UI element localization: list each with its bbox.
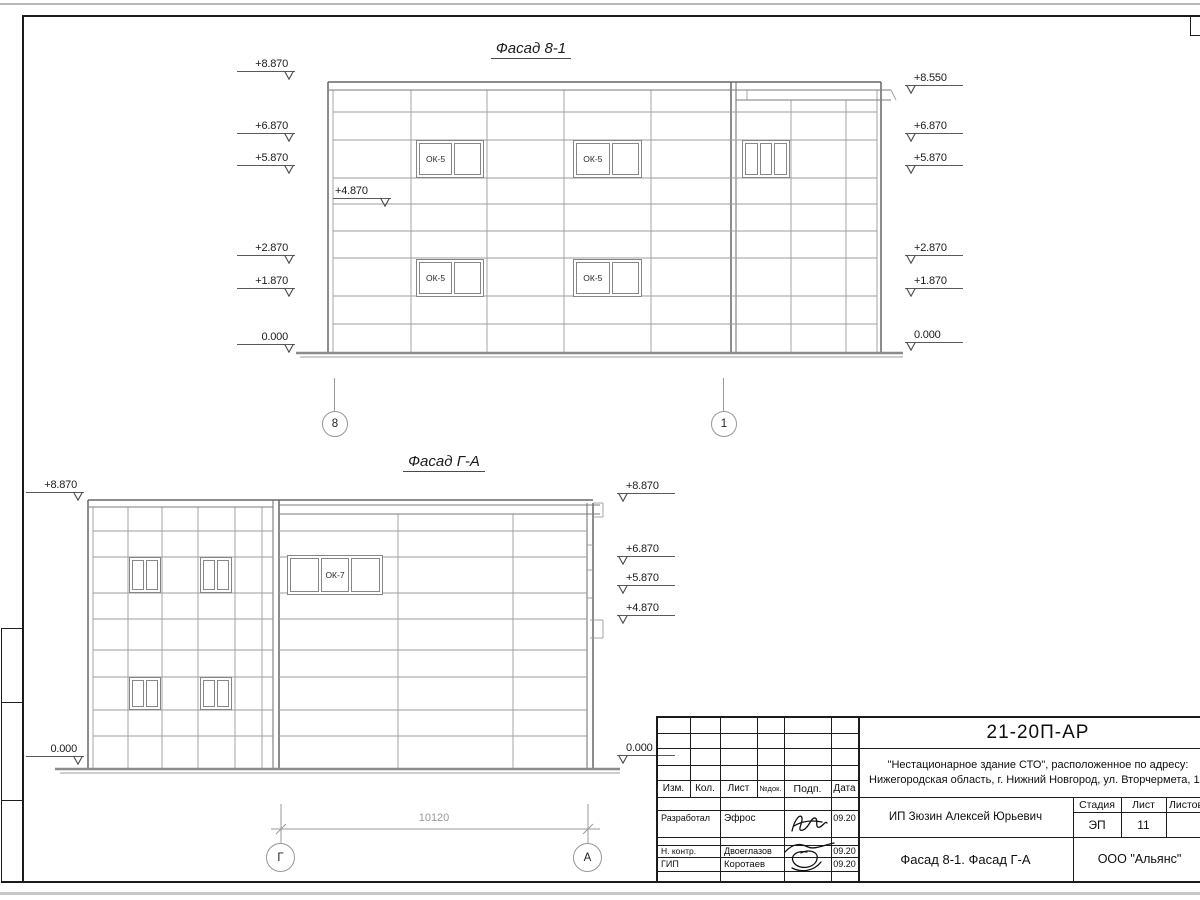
client: ИП Зюзин Алексей Юрьевич bbox=[858, 797, 1073, 837]
object-line1: "Нестационарное здание СТО", расположенн… bbox=[888, 758, 1189, 773]
elevation-mark: +6.870 bbox=[237, 118, 295, 134]
sheet-label: Лист bbox=[1121, 797, 1166, 812]
sheets-label: Листов bbox=[1166, 797, 1200, 812]
window-ok5: ОК-5 bbox=[416, 259, 484, 297]
object-line2: Нижегородская область, г. Нижний Новгоро… bbox=[869, 773, 1200, 788]
sig-role: Разработал bbox=[657, 810, 720, 826]
sig-name: Двоеглазов bbox=[720, 845, 784, 857]
elevation-mark: +8.870 bbox=[26, 477, 84, 493]
elevation-mark: +1.870 bbox=[237, 273, 295, 289]
sig-name: Коротаев bbox=[720, 857, 784, 871]
axis-bubble-a: А bbox=[573, 843, 602, 872]
sig-name: Эфрос bbox=[720, 810, 784, 826]
stage-value: ЭП bbox=[1073, 812, 1121, 837]
elevation-mark: 0.000 bbox=[237, 329, 295, 345]
elevation-mark: +6.870 bbox=[905, 118, 963, 134]
dimension-value: 10120 bbox=[404, 812, 464, 824]
sig-role: Н. контр. bbox=[657, 845, 720, 857]
signature-razrabotal bbox=[788, 811, 830, 836]
facade-ga-linework bbox=[45, 495, 620, 785]
elevation-mark: +5.870 bbox=[237, 150, 295, 166]
window-triple bbox=[742, 140, 790, 178]
signature-nkontr-gip bbox=[782, 840, 837, 874]
col-izm: Изм. bbox=[657, 780, 690, 797]
facade-ga-title: Фасад Г-А bbox=[359, 453, 529, 470]
organization: ООО "Альянс" bbox=[1073, 837, 1200, 881]
drawing-title: Фасад 8-1. Фасад Г-А bbox=[858, 837, 1073, 881]
axis-bubble-8: 8 bbox=[322, 411, 348, 437]
sheet-value: 11 bbox=[1121, 812, 1166, 837]
window-small bbox=[200, 557, 232, 593]
elevation-mark: +8.550 bbox=[905, 70, 963, 86]
elevation-mark: +5.870 bbox=[617, 570, 675, 586]
window-small bbox=[129, 557, 161, 593]
paper-edge-top bbox=[0, 3, 1200, 5]
elevation-mark: +1.870 bbox=[905, 273, 963, 289]
facade-81-title: Фасад 8-1 bbox=[446, 40, 616, 57]
window-ok5: ОК-5 bbox=[573, 140, 642, 178]
drawing-sheet: Фасад 8-1 ОК-5 ОК-5 ОК-5 ОК- bbox=[0, 0, 1200, 900]
elevation-mark: +4.870 bbox=[617, 600, 675, 616]
object-address: "Нестационарное здание СТО", расположенн… bbox=[858, 750, 1200, 796]
elevation-mark: +5.870 bbox=[905, 150, 963, 166]
window-ok5: ОК-5 bbox=[573, 259, 642, 297]
facade-81-linework bbox=[290, 78, 910, 363]
stage-label: Стадия bbox=[1073, 797, 1121, 812]
sig-date: 09.20 bbox=[831, 810, 858, 826]
col-data: Дата bbox=[831, 780, 858, 797]
col-kol: Кол. bbox=[690, 780, 720, 797]
elevation-mark: +8.870 bbox=[237, 56, 295, 72]
col-list: Лист bbox=[720, 780, 757, 797]
doc-code: 21-20П-АР bbox=[858, 717, 1200, 748]
elevation-mark: +2.870 bbox=[237, 240, 295, 256]
axis-leader bbox=[723, 378, 724, 411]
col-podp: Подп. bbox=[784, 780, 831, 797]
axis-bubble-g: Г bbox=[266, 843, 295, 872]
elevation-mark: +6.870 bbox=[617, 541, 675, 557]
window-small bbox=[129, 677, 161, 710]
elevation-mark: +4.870 bbox=[333, 183, 391, 199]
col-ndok: №док. bbox=[757, 780, 784, 797]
elevation-mark: +2.870 bbox=[905, 240, 963, 256]
axis-bubble-1: 1 bbox=[711, 411, 737, 437]
elevation-mark: 0.000 bbox=[26, 741, 84, 757]
elevation-mark: +8.870 bbox=[617, 478, 675, 494]
paper-edge-bottom bbox=[0, 892, 1200, 895]
elevation-mark: 0.000 bbox=[905, 327, 963, 343]
window-ok7: ОК-7 bbox=[287, 555, 383, 595]
window-ok5: ОК-5 bbox=[416, 140, 484, 178]
axis-leader bbox=[334, 378, 335, 411]
dimension-line bbox=[255, 800, 615, 850]
sig-role: ГИП bbox=[657, 857, 720, 871]
window-small bbox=[200, 677, 232, 710]
